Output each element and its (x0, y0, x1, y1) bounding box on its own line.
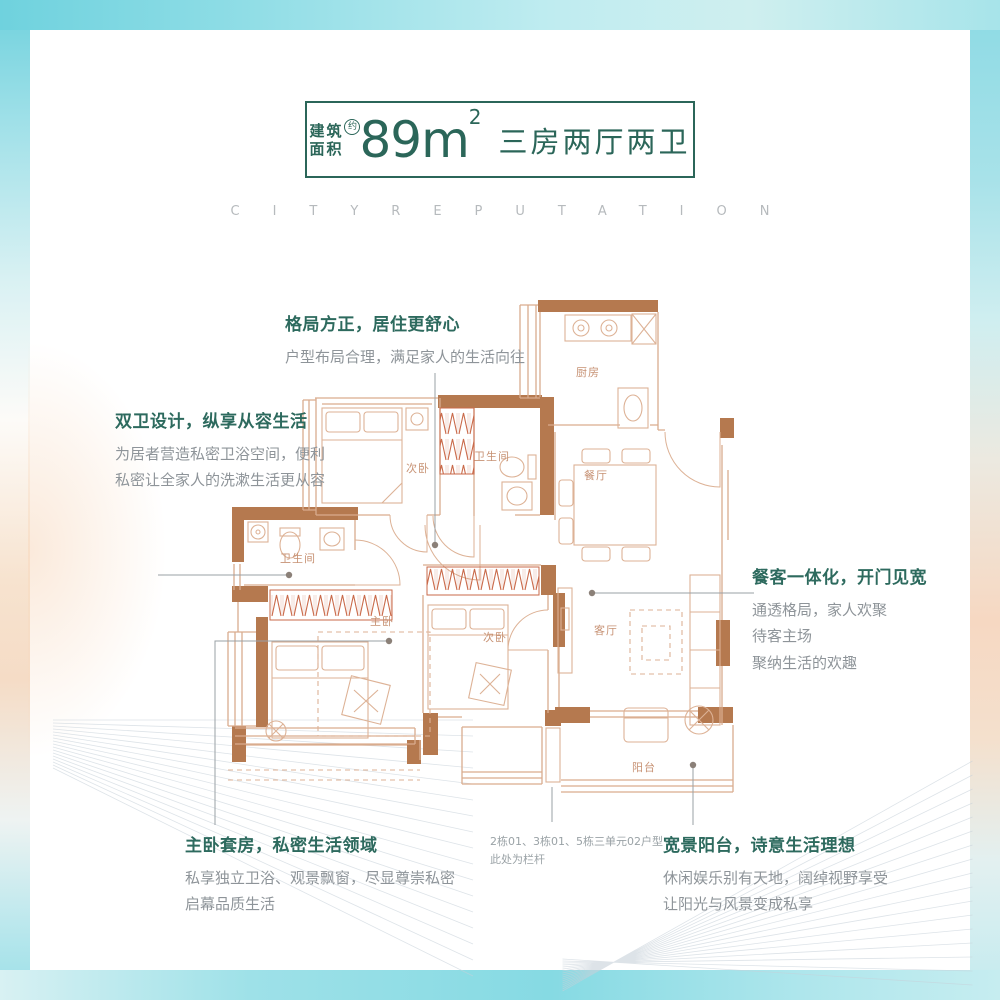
annotation-balcony-title: 宽景阳台，诗意生活理想 (663, 831, 888, 856)
annotation-dining-living-line-2: 待客主场 (752, 623, 927, 649)
frame-gradient-left (0, 0, 30, 1000)
annotation-master-suite-title: 主卧套房，私密生活领域 (185, 831, 455, 856)
room-label-dining: 餐厅 (584, 468, 608, 482)
annotation-layout: 格局方正，居住更舒心 户型布局合理，满足家人的生活向往 (285, 310, 525, 370)
annotation-master-suite-line-1: 私享独立卫浴、观景飘窗，尽显尊崇私密 (185, 865, 455, 891)
frame-gradient-top (0, 0, 1000, 30)
plan-unit-note-line-1: 2栋01、3栋01、5栋三单元02户型 (490, 833, 663, 851)
annotation-layout-title: 格局方正，居住更舒心 (285, 310, 525, 335)
annotation-dual-bath: 双卫设计，纵享从容生活 为居者营造私密卫浴空间，便利 私密让全家人的洗漱生活更从… (115, 407, 325, 494)
room-label-bathroom-1: 卫生间 (474, 449, 510, 463)
room-label-balcony: 阳台 (632, 760, 656, 774)
annotation-master-suite-line-2: 启幕品质生活 (185, 891, 455, 917)
annotation-dining-living: 餐客一体化，开门见宽 通透格局，家人欢聚 待客主场 聚纳生活的欢趣 (752, 563, 927, 676)
annotation-dining-living-title: 餐客一体化，开门见宽 (752, 563, 927, 588)
header-title-box: 建筑 面积 约 89m 2 三房两厅两卫 (305, 101, 695, 178)
room-label-master-bedroom: 主卧 (370, 615, 394, 628)
area-number: 89m (359, 115, 468, 165)
watermark-text: CITYREPUTATION (0, 204, 1000, 219)
decor-peach-glow (28, 340, 168, 760)
annotation-dual-bath-title: 双卫设计，纵享从容生活 (115, 407, 325, 432)
room-label-bedroom-3: 次卧 (483, 630, 507, 644)
approx-badge: 约 (344, 119, 360, 135)
poster-stage: 建筑 面积 约 89m 2 三房两厅两卫 CITYREPUTATION (0, 0, 1000, 1000)
area-label: 建筑 面积 约 (309, 122, 359, 158)
area-value: 89m 2 (359, 115, 480, 165)
layout-type-label: 三房两厅两卫 (499, 119, 691, 161)
area-label-top: 建筑 (309, 122, 343, 140)
annotation-master-suite: 主卧套房，私密生活领域 私享独立卫浴、观景飘窗，尽显尊崇私密 启幕品质生活 (185, 831, 455, 918)
room-label-bathroom-2: 卫生间 (280, 551, 316, 565)
annotation-balcony-line-1: 休闲娱乐别有天地，阔绰视野享受 (663, 865, 888, 891)
plan-unit-note-line-2: 此处为栏杆 (490, 851, 663, 869)
room-label-bedroom-2: 次卧 (406, 461, 430, 475)
annotation-dining-living-line-1: 通透格局，家人欢聚 (752, 597, 927, 623)
room-label-living: 客厅 (594, 623, 618, 637)
area-exponent: 2 (469, 107, 481, 127)
plan-unit-note: 2栋01、3栋01、5栋三单元02户型 此处为栏杆 (490, 833, 663, 868)
area-label-bottom: 面积 (309, 140, 343, 158)
room-label-kitchen: 厨房 (576, 366, 600, 379)
annotation-balcony-line-2: 让阳光与风景变成私享 (663, 891, 888, 917)
annotation-dual-bath-line-2: 私密让全家人的洗漱生活更从容 (115, 467, 325, 493)
annotation-dining-living-line-3: 聚纳生活的欢趣 (752, 650, 927, 676)
annotation-layout-line-1: 户型布局合理，满足家人的生活向往 (285, 344, 525, 370)
plan-furniture (248, 314, 720, 742)
annotation-dual-bath-line-1: 为居者营造私密卫浴空间，便利 (115, 441, 325, 467)
annotation-balcony: 宽景阳台，诗意生活理想 休闲娱乐别有天地，阔绰视野享受 让阳光与风景变成私享 (663, 831, 888, 918)
